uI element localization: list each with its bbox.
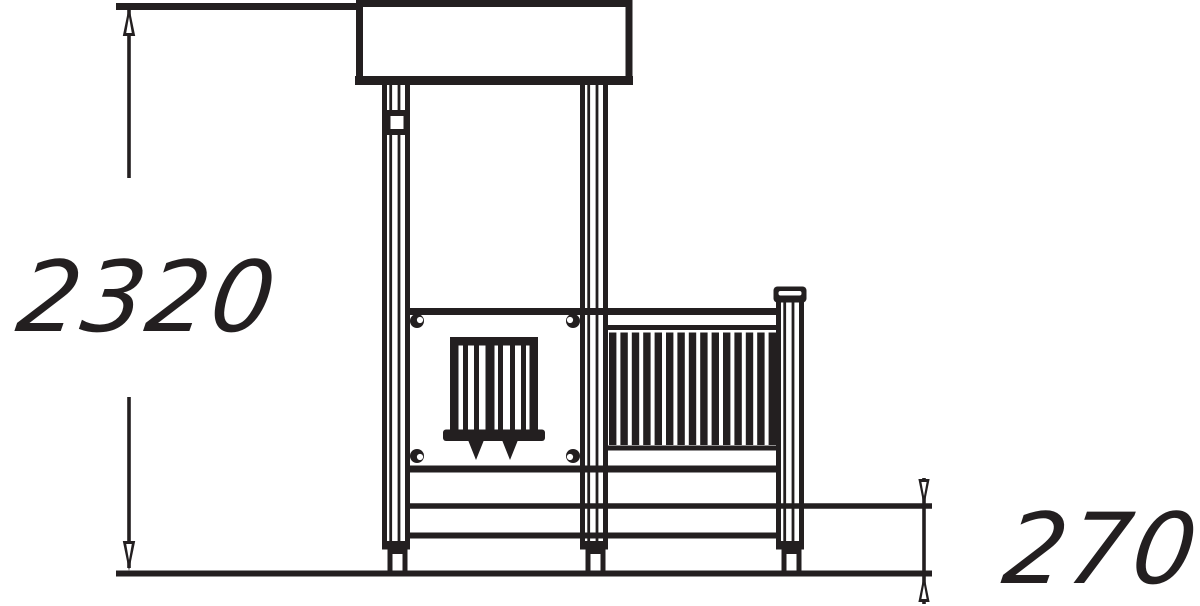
left-post — [382, 84, 410, 574]
post-cap-highlight — [779, 291, 802, 296]
clamp-hook-hole — [417, 317, 423, 323]
baluster — [655, 333, 662, 446]
baluster — [734, 333, 741, 446]
roof-panel — [355, 4, 633, 81]
slat — [474, 345, 479, 433]
post-ground-anchor — [588, 552, 603, 574]
platform-height-label: 270 — [997, 493, 1200, 606]
baluster — [769, 333, 776, 446]
slat — [486, 345, 495, 433]
baluster — [632, 333, 639, 446]
chime-slat-toy — [443, 337, 545, 460]
slat-toy-left-edge — [450, 337, 459, 438]
slat-row — [463, 345, 526, 433]
dimension-overall-height: 2320 — [11, 6, 362, 571]
post-bolt-hole — [391, 116, 404, 129]
baluster — [746, 333, 753, 446]
baluster — [666, 333, 673, 446]
slat — [521, 345, 526, 433]
slat-toy-top-bar — [450, 337, 538, 346]
right-post — [774, 287, 807, 574]
slat-toy-right-edge — [530, 337, 539, 438]
play-panel — [410, 314, 580, 463]
slat — [463, 345, 468, 433]
baluster — [723, 333, 730, 446]
roof-panel-box — [360, 4, 630, 81]
baluster — [757, 333, 764, 446]
dimension-platform-height: 270 — [918, 478, 1200, 606]
slat — [510, 345, 515, 433]
baluster-railing — [609, 333, 776, 446]
post-bottom-band — [580, 541, 608, 550]
clamp-hook-hole — [567, 454, 573, 460]
slat-toy-drop — [468, 440, 484, 460]
post-bottom-band — [382, 541, 410, 550]
drawing-page: 2320 270 — [0, 0, 1200, 606]
baluster — [643, 333, 650, 446]
baluster — [609, 333, 616, 446]
slat-toy-bottom-bar — [443, 430, 545, 442]
baluster — [700, 333, 707, 446]
middle-post — [580, 84, 608, 574]
baluster — [620, 333, 627, 446]
slat — [498, 345, 503, 433]
clamp-hook-hole — [417, 454, 423, 460]
baluster — [677, 333, 684, 446]
baluster-row — [609, 333, 776, 446]
clamp-hook-hole — [567, 317, 573, 323]
overall-height-label: 2320 — [11, 241, 284, 354]
technical-drawing: 2320 270 — [0, 0, 1200, 606]
slat-toy-drop — [502, 440, 518, 460]
post-bottom-band — [776, 541, 804, 550]
post-ground-anchor — [390, 552, 405, 574]
baluster — [712, 333, 719, 446]
baluster — [689, 333, 696, 446]
post-ground-anchor — [784, 552, 799, 574]
